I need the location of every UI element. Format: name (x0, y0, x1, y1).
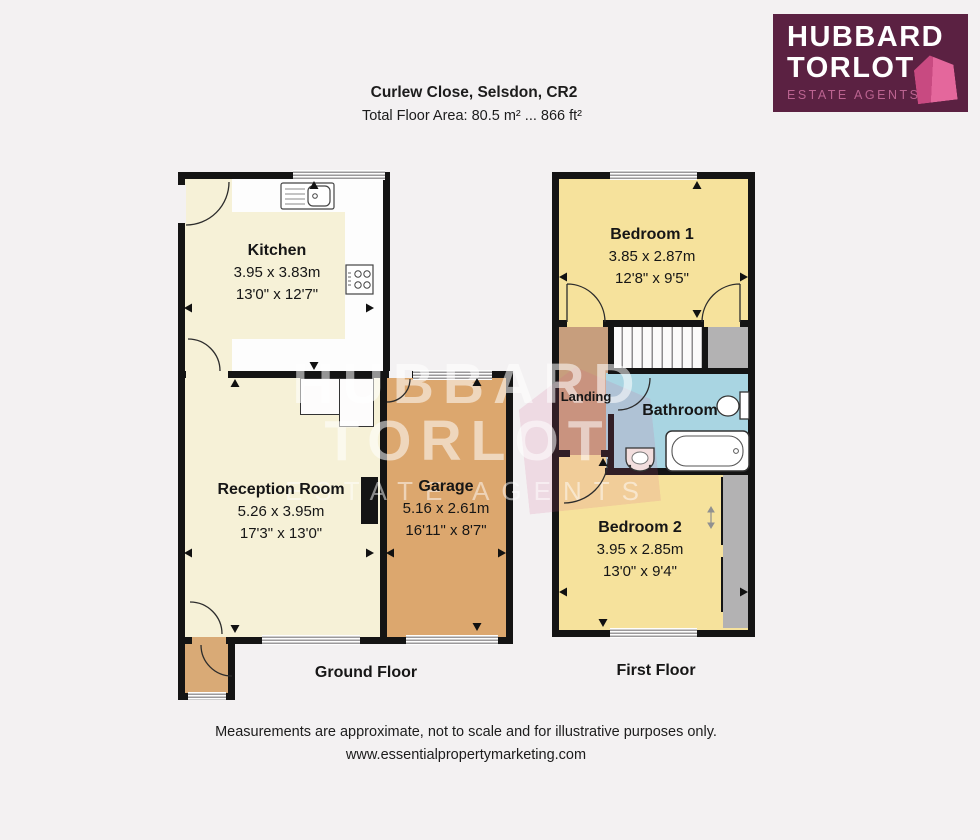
reception-name: Reception Room (217, 479, 344, 501)
stairs-ground-landing (339, 378, 374, 427)
stairs-ground (300, 378, 340, 415)
agency-logo: HUBBARD TORLOT ESTATE AGENTS (773, 14, 968, 112)
website-text: www.essentialpropertymarketing.com (346, 747, 586, 763)
wall-segment (552, 320, 567, 327)
wall-segment (608, 368, 748, 374)
bedroom2-imperial: 13'0" x 9'4" (597, 561, 684, 583)
bedroom2-metric: 3.95 x 2.85m (597, 539, 684, 561)
bedroom2-label: Bedroom 2 3.95 x 2.85m 13'0" x 9'4" (597, 517, 684, 583)
kitchen-metric: 3.95 x 3.83m (234, 262, 321, 284)
kitchen-label: Kitchen 3.95 x 3.83m 13'0" x 12'7" (234, 240, 321, 306)
kitchen-imperial: 13'0" x 12'7" (234, 284, 321, 306)
window-bedroom2 (610, 628, 697, 638)
stairs-first (613, 327, 702, 368)
window-garage-bottom (406, 635, 498, 645)
bathroom-label: Bathroom (642, 400, 718, 422)
kitchen-name: Kitchen (234, 240, 321, 262)
wall-segment (603, 320, 704, 327)
bedroom1-imperial: 12'8" x 9'5" (609, 268, 696, 290)
logo-wordmark-line1: HUBBARD (787, 22, 968, 53)
bedroom1-label: Bedroom 1 3.85 x 2.87m 12'8" x 9'5" (609, 224, 696, 290)
floorplan-page: HUBBARD TORLOT ESTATE AGENTS Curlew Clos… (0, 0, 980, 840)
wardrobe-area (723, 475, 748, 628)
floor-label-first: First Floor (616, 662, 695, 680)
doorway-kitchen-exterior (178, 185, 186, 223)
doorway-garage-side (389, 371, 412, 378)
reception-metric: 5.26 x 3.95m (217, 501, 344, 523)
disclaimer-text: Measurements are approximate, not to sca… (215, 724, 717, 740)
window-kitchen (293, 170, 385, 180)
floor-area-subtitle: Total Floor Area: 80.5 m² ... 866 ft² (362, 108, 582, 124)
wall-segment (740, 320, 755, 327)
reception-label: Reception Room 5.26 x 3.95m 17'3" x 13'0… (217, 479, 344, 545)
garage-metric: 5.16 x 2.61m (403, 498, 490, 520)
landing-label: Landing (561, 386, 612, 408)
window-reception (262, 635, 360, 645)
reception-imperial: 17'3" x 13'0" (217, 523, 344, 545)
window-garage-top (413, 370, 492, 380)
bedroom1-metric: 3.85 x 2.87m (609, 246, 696, 268)
doorway-reception-porch (192, 637, 226, 644)
wall-segment (608, 327, 614, 368)
wardrobe-line (721, 477, 723, 545)
garage-label: Garage 5.16 x 2.61m 16'11" x 8'7" (403, 476, 490, 542)
garage-name: Garage (403, 476, 490, 498)
window-porch (188, 692, 226, 700)
chimney-breast (361, 477, 378, 524)
page-title: Curlew Close, Selsdon, CR2 (371, 84, 578, 102)
bedroom2-name: Bedroom 2 (597, 517, 684, 539)
doorway-kitchen-reception (186, 371, 228, 378)
window-bedroom1 (610, 170, 697, 180)
garage-imperial: 16'11" x 8'7" (403, 520, 490, 542)
floor-label-ground: Ground Floor (315, 664, 417, 682)
wall-segment (702, 327, 708, 368)
bedroom1-name: Bedroom 1 (609, 224, 696, 246)
porch-room (178, 637, 235, 700)
wardrobe-line (721, 557, 723, 612)
closet-area (707, 327, 748, 368)
